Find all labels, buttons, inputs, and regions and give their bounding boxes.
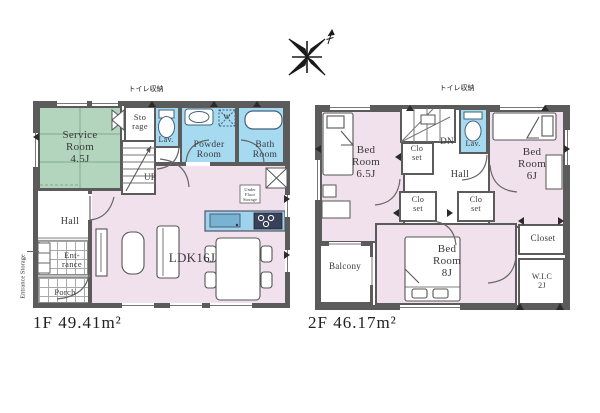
entrance-storage-cabinet (38, 243, 50, 273)
label-balcony: Balcony (315, 262, 375, 272)
dining-table-icon (205, 238, 272, 300)
label-porch: Porch (45, 288, 85, 297)
label-closet-a: Clo set (401, 145, 433, 163)
toilet-storage-note-2f: トイレ収納 (432, 83, 482, 93)
bifold-door-icon (112, 110, 124, 130)
floor1-plan: Service Room 4.5J Sto rage Lav. Powder R… (33, 101, 290, 308)
compass-north-icon (281, 27, 337, 83)
label-service-room: Service Room 4.5J (40, 129, 120, 165)
desk-icon-65 (322, 185, 350, 218)
hatch-box-icon (266, 168, 287, 188)
label-wic: W.I.C 2J (512, 273, 572, 291)
stairs-up-icon (122, 141, 155, 194)
label-bedroom6: Bed Room 6J (492, 146, 572, 182)
kitchen-counter-icon (205, 211, 285, 231)
sink-icon-1f (185, 109, 213, 125)
label-bedroom8: Bed Room 8J (407, 243, 487, 279)
entrance-storage-pointer-line (27, 251, 39, 252)
label-hall-1f: Hall (50, 216, 90, 227)
tv-board-icon (96, 229, 107, 276)
label-bath-room: Bath Room (235, 140, 295, 161)
bathtub-icon (245, 111, 282, 129)
label-washing-machine: W (219, 113, 235, 121)
floorplan-page: Service Room 4.5J Sto rage Lav. Powder R… (0, 0, 600, 413)
label-lavatory-2f: Lav. (457, 140, 489, 149)
label-ldk: LDK16J (152, 251, 232, 265)
toilet-icon-2f (464, 112, 482, 141)
label-powder-room: Powder Room (179, 140, 239, 161)
floor2-plan: Bed Room 6.5J DN Lav. Clo set Hall Bed R… (315, 105, 570, 310)
toilet-icon-1f (159, 110, 175, 138)
label-lavatory-1f: Lav. (150, 136, 182, 145)
entrance-storage-note: Entrance Storage (20, 245, 27, 309)
coffee-table-icon (122, 232, 144, 274)
label-closet-c: Clo set (460, 196, 492, 214)
bed-icon-6 (493, 113, 556, 140)
label-closet-b: Clo set (402, 196, 434, 214)
label-bedroom65: Bed Room 6.5J (326, 144, 406, 180)
label-closet-right: Closet (513, 234, 573, 244)
floor2-area-label: 2F 46.17m² (308, 313, 397, 333)
label-entrance: Ent- rance (52, 251, 92, 270)
toilet-storage-note-1f: トイレ収納 (121, 84, 171, 94)
label-stairs-up: UP (138, 173, 162, 183)
label-under-floor-storage: Under Floor Storage (240, 187, 260, 202)
label-storage: Sto rage (124, 113, 156, 132)
label-hall-2f: Hall (440, 169, 480, 180)
floor1-area-label: 1F 49.41m² (33, 313, 122, 333)
